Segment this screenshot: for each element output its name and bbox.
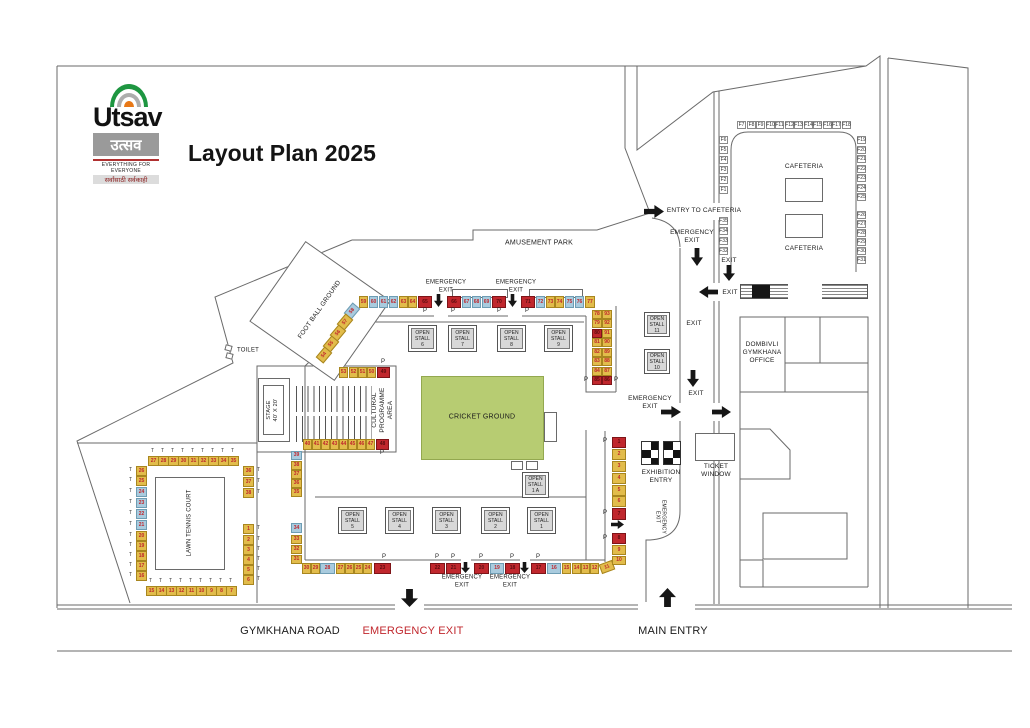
- stall-48: 48: [376, 439, 389, 450]
- food-stall-F7: F7: [737, 121, 746, 129]
- parking-mark: P: [435, 554, 439, 560]
- food-stall-F16: F16: [823, 121, 832, 129]
- map-label: AMUSEMENT PARK: [505, 240, 573, 249]
- stall-81: 81: [592, 338, 602, 347]
- map-label: CAFETERIA: [785, 245, 823, 253]
- right-arrow-icon: [661, 406, 681, 418]
- open-stall-label: OPEN STALL 5: [341, 510, 364, 531]
- stall-52: 52: [349, 367, 358, 378]
- w-box: [785, 178, 823, 202]
- w-box: [785, 214, 823, 238]
- down-arrow-icon: [687, 370, 699, 387]
- stall-9: 9: [612, 545, 626, 555]
- stall-77: 77: [585, 296, 595, 308]
- black-box: [752, 285, 770, 298]
- stall-33: 33: [291, 535, 302, 544]
- right-arrow-icon: [644, 205, 664, 218]
- right-arrow-icon: [712, 406, 731, 418]
- stall-1: 1: [612, 437, 626, 448]
- stall-74: 74: [555, 296, 564, 308]
- stall-8: 8: [612, 533, 626, 544]
- food-stall-F18: F18: [842, 121, 851, 129]
- parking-mark: P: [584, 377, 588, 383]
- stall-75: 75: [565, 296, 574, 308]
- open-stall: OPEN STALL 11: [644, 312, 670, 337]
- stall-22: 22: [430, 563, 445, 574]
- map-label: EXIT: [722, 289, 737, 297]
- food-stall-F14: F14: [804, 121, 813, 129]
- stall-14: 14: [572, 563, 581, 574]
- stall-31: 31: [291, 555, 302, 564]
- left-arrow-icon: [699, 286, 718, 298]
- tennis-t-mark: T: [257, 567, 260, 572]
- tennis-stall-37: 37: [243, 477, 254, 487]
- stall-45: 45: [348, 439, 357, 450]
- tennis-stall-18: 18: [136, 551, 147, 561]
- food-stall-F28: F28: [857, 229, 866, 237]
- food-stall-F1: F1: [719, 186, 728, 194]
- down-arrow-icon: [508, 294, 517, 307]
- stall-71: 71: [521, 296, 535, 308]
- stall-84: 84: [592, 367, 602, 376]
- w-box: [225, 352, 233, 360]
- open-stall: OPEN STALL 5: [338, 507, 367, 534]
- food-stall-F19: F19: [857, 136, 866, 144]
- tennis-t-mark: T: [129, 573, 132, 578]
- food-stall-F32: F32: [719, 247, 728, 255]
- tennis-stall-5: 5: [243, 565, 254, 575]
- open-stall-label: OPEN STALL 8: [500, 328, 523, 349]
- tennis-t-mark: T: [221, 449, 224, 454]
- food-stall-F13: F13: [794, 121, 803, 129]
- tennis-stall-6: 6: [243, 575, 254, 585]
- tennis-stall-26: 26: [136, 466, 147, 476]
- parking-mark: P: [451, 554, 455, 560]
- stall-63: 63: [399, 296, 408, 308]
- tennis-t-mark: T: [129, 500, 132, 505]
- tennis-stall-20: 20: [136, 531, 147, 541]
- tennis-t-mark: T: [161, 449, 164, 454]
- parking-mark: P: [536, 554, 540, 560]
- food-stall-F2: F2: [719, 176, 728, 184]
- food-stall-F22: F22: [857, 165, 866, 173]
- map-label: MAIN ENTRY: [638, 625, 708, 639]
- open-stall-label: OPEN STALL 3: [435, 510, 458, 531]
- stall-64: 64: [408, 296, 417, 308]
- open-stall: OPEN STALL 10: [644, 349, 670, 374]
- food-stall-F20: F20: [857, 146, 866, 154]
- map-label: EXIT: [688, 390, 703, 398]
- food-stall-F33: F33: [719, 237, 728, 245]
- food-stall-F29: F29: [857, 238, 866, 246]
- layout-plan-map: 5960616263646566676869707172737475767758…: [0, 0, 1030, 728]
- stall-23: 23: [374, 563, 391, 574]
- tennis-stall-3: 3: [243, 545, 254, 555]
- stall-13: 13: [581, 563, 590, 574]
- open-stall-label: OPEN STALL 6: [411, 328, 434, 349]
- parking-mark: P: [479, 554, 483, 560]
- parking-mark: P: [603, 535, 607, 541]
- stall-17: 17: [531, 563, 546, 574]
- stall-32: 32: [291, 545, 302, 554]
- tennis-t-mark: T: [229, 579, 232, 584]
- parking-mark: P: [603, 510, 607, 516]
- stall-42: 42: [321, 439, 330, 450]
- w-box: [224, 344, 232, 352]
- food-stall-F34: F34: [719, 227, 728, 235]
- food-stall-F17: F17: [832, 121, 841, 129]
- food-stall-F24: F24: [857, 184, 866, 192]
- tennis-t-mark: T: [231, 449, 234, 454]
- stall-89: 89: [602, 348, 612, 357]
- parking-mark: P: [380, 450, 384, 456]
- tennis-t-mark: T: [169, 579, 172, 584]
- tennis-stall-7: 7: [226, 586, 237, 596]
- stall-46: 46: [357, 439, 366, 450]
- tennis-t-mark: T: [149, 579, 152, 584]
- down-arrow-icon: [461, 562, 470, 573]
- tennis-stall-2: 2: [243, 535, 254, 545]
- stall-4: 4: [612, 473, 626, 484]
- map-label: DOMBIVLI GYMKHANA OFFICE: [743, 341, 782, 365]
- tennis-t-mark: T: [129, 563, 132, 568]
- map-label: EXIT: [686, 320, 701, 328]
- parking-mark: P: [525, 308, 529, 314]
- w-box: [526, 461, 538, 470]
- stall-10: 10: [612, 556, 626, 565]
- stall-68: 68: [472, 296, 481, 308]
- tennis-t-mark: T: [209, 579, 212, 584]
- down-arrow-icon: [401, 589, 418, 607]
- stall-49: 49: [377, 367, 390, 378]
- tennis-t-mark: T: [257, 537, 260, 542]
- map-label: CRICKET GROUND: [449, 414, 515, 423]
- stall-92: 92: [602, 319, 612, 328]
- food-stall-F9: F9: [756, 121, 765, 129]
- food-stall-F11: F11: [775, 121, 784, 129]
- stall-39: 39: [291, 451, 302, 460]
- stall-34: 34: [291, 523, 302, 533]
- tennis-t-mark: T: [129, 511, 132, 516]
- tennis-t-mark: T: [129, 489, 132, 494]
- tennis-t-mark: T: [159, 579, 162, 584]
- stall-29: 29: [311, 563, 320, 574]
- food-stall-F25: F25: [857, 193, 866, 201]
- parking-mark: P: [423, 308, 427, 314]
- stall-15: 15: [562, 563, 571, 574]
- map-label: EMERGENCY EXIT: [362, 625, 463, 639]
- stall-88: 88: [602, 357, 612, 366]
- stall-18: 18: [505, 563, 520, 574]
- tennis-stall-25: 25: [136, 476, 147, 486]
- stall-61: 61: [379, 296, 388, 308]
- parking-mark: P: [603, 438, 607, 444]
- food-stall-F35: F35: [719, 217, 728, 225]
- open-stall-label: OPEN STALL 1 A: [525, 475, 546, 495]
- parking-mark: P: [497, 308, 501, 314]
- stall-59: 59: [359, 296, 368, 308]
- stall-93: 93: [602, 310, 612, 319]
- map-label: EMERGENCY EXIT: [654, 500, 667, 534]
- stall-79: 79: [592, 319, 602, 328]
- tennis-t-mark: T: [189, 579, 192, 584]
- stall-69: 69: [482, 296, 491, 308]
- stall-25: 25: [354, 563, 363, 574]
- tennis-t-mark: T: [151, 449, 154, 454]
- tennis-t-mark: T: [199, 579, 202, 584]
- up-arrow-icon: [659, 588, 676, 607]
- stall-5: 5: [612, 485, 626, 496]
- tennis-stall-21: 21: [136, 520, 147, 530]
- open-stall-label: OPEN STALL 2: [484, 510, 507, 531]
- open-stall: OPEN STALL 7: [448, 325, 477, 352]
- tennis-stall-16: 16: [136, 571, 147, 581]
- tennis-t-mark: T: [191, 449, 194, 454]
- stall-51: 51: [358, 367, 367, 378]
- tennis-t-mark: T: [129, 468, 132, 473]
- tennis-t-mark: T: [129, 533, 132, 538]
- down-arrow-icon: [520, 562, 529, 573]
- stall-73: 73: [546, 296, 555, 308]
- stall-16: 16: [547, 563, 561, 574]
- stall-80: 80: [592, 329, 602, 338]
- tennis-t-mark: T: [129, 522, 132, 527]
- stall-38: 38: [291, 461, 302, 470]
- map-label: STAGE 40' X 20': [266, 399, 280, 422]
- map-label: EMERGENCY EXIT: [426, 280, 466, 295]
- stall-47: 47: [366, 439, 375, 450]
- stall-76: 76: [575, 296, 584, 308]
- stall-35: 35: [291, 488, 302, 497]
- tennis-t-mark: T: [257, 468, 260, 473]
- stall-44: 44: [339, 439, 348, 450]
- stall-78: 78: [592, 310, 602, 319]
- tennis-stall-4: 4: [243, 555, 254, 565]
- stall-62: 62: [389, 296, 398, 308]
- tennis-stall-35: 35: [228, 456, 239, 466]
- map-label: EXHIBITION ENTRY: [642, 469, 681, 485]
- parking-mark: P: [381, 359, 385, 365]
- down-arrow-icon: [723, 265, 735, 281]
- stall-41: 41: [312, 439, 321, 450]
- stall-26: 26: [345, 563, 354, 574]
- stall-66: 66: [447, 296, 461, 308]
- tennis-t-mark: T: [257, 490, 260, 495]
- parking-mark: P: [451, 308, 455, 314]
- food-stall-F5: F5: [719, 146, 728, 154]
- map-label: LAWN TENNIS COURT: [186, 490, 194, 557]
- stall-43: 43: [330, 439, 339, 450]
- food-stall-F12: F12: [785, 121, 794, 129]
- stall-82: 82: [592, 348, 602, 357]
- tennis-t-mark: T: [257, 526, 260, 531]
- stall-36: 36: [291, 479, 302, 488]
- tennis-t-mark: T: [179, 579, 182, 584]
- stall-7: 7: [612, 508, 626, 520]
- stall-83: 83: [592, 357, 602, 366]
- food-stall-F8: F8: [747, 121, 756, 129]
- down-arrow-icon: [691, 248, 703, 266]
- parking-mark: P: [510, 554, 514, 560]
- map-label: CAFETERIA: [785, 163, 823, 171]
- tennis-t-mark: T: [129, 553, 132, 558]
- stall-70: 70: [492, 296, 506, 308]
- map-label: EMERGENCY EXIT: [496, 280, 536, 295]
- map-label: GYMKHANA ROAD: [240, 625, 340, 639]
- open-stall-label: OPEN STALL 11: [647, 315, 667, 334]
- tennis-t-mark: T: [219, 579, 222, 584]
- stall-60: 60: [369, 296, 378, 308]
- food-stall-F26: F26: [857, 211, 866, 219]
- open-stall: OPEN STALL 3: [432, 507, 461, 534]
- map-label: EMERGENCY EXIT: [442, 575, 482, 590]
- tennis-t-mark: T: [257, 547, 260, 552]
- open-stall: OPEN STALL 8: [497, 325, 526, 352]
- tennis-t-mark: T: [129, 478, 132, 483]
- stall-50: 50: [367, 367, 376, 378]
- stall-91: 91: [602, 329, 612, 338]
- food-stall-F15: F15: [813, 121, 822, 129]
- w-box: [544, 412, 557, 442]
- check2-box: [663, 441, 681, 465]
- map-label: EXIT: [721, 257, 736, 265]
- open-stall: OPEN STALL 1: [527, 507, 556, 534]
- map-label: EMERGENCY EXIT: [490, 575, 530, 590]
- check-box: [641, 441, 659, 465]
- stall-6: 6: [612, 496, 626, 507]
- map-label: CULTURAL PROGRAMME AREA: [371, 387, 395, 432]
- tennis-t-mark: T: [257, 479, 260, 484]
- open-stall: OPEN STALL 4: [385, 507, 414, 534]
- open-stall-label: OPEN STALL 4: [388, 510, 411, 531]
- open-stall-label: OPEN STALL 7: [451, 328, 474, 349]
- stall-87: 87: [602, 367, 612, 376]
- map-label: TICKET WINDOW: [701, 463, 731, 479]
- map-label: ENTRY TO CAFETERIA: [667, 207, 741, 215]
- open-stall-label: OPEN STALL 10: [647, 352, 667, 371]
- stall-65: 65: [418, 296, 432, 308]
- w-box: [511, 461, 523, 470]
- food-stall-F6: F6: [719, 136, 728, 144]
- food-stall-F27: F27: [857, 220, 866, 228]
- map-label: TOILET: [237, 347, 259, 355]
- stall-37: 37: [291, 470, 302, 479]
- tennis-t-mark: T: [129, 543, 132, 548]
- stall-53: 53: [339, 367, 348, 378]
- tennis-stall-19: 19: [136, 541, 147, 551]
- stall-3: 3: [612, 461, 626, 472]
- down-arrow-icon: [434, 294, 443, 307]
- stall-19: 19: [490, 563, 504, 574]
- stall-85: 85: [592, 376, 602, 385]
- layout-plan-page: Utsav उत्सव EVERYTHING FOR EVERYONE सर्व…: [0, 0, 1030, 728]
- tennis-t-mark: T: [201, 449, 204, 454]
- stall-40: 40: [303, 439, 312, 450]
- tennis-stall-17: 17: [136, 561, 147, 571]
- tennis-stall-23: 23: [136, 498, 147, 508]
- stall-28: 28: [320, 563, 335, 574]
- open-stall: OPEN STALL 2: [481, 507, 510, 534]
- tennis-t-mark: T: [211, 449, 214, 454]
- stall-20: 20: [474, 563, 489, 574]
- tennis-stall-1: 1: [243, 524, 254, 534]
- open-stall-label: OPEN STALL 1: [530, 510, 553, 531]
- w-box: [695, 433, 735, 461]
- tennis-t-mark: T: [257, 577, 260, 582]
- map-label: EMERGENCY EXIT: [670, 229, 714, 245]
- open-stall: OPEN STALL 6: [408, 325, 437, 352]
- stall-67: 67: [462, 296, 471, 308]
- right-arrow-icon: [611, 520, 624, 529]
- food-stall-F4: F4: [719, 156, 728, 164]
- tennis-stall-36: 36: [243, 466, 254, 476]
- food-stall-F10: F10: [766, 121, 775, 129]
- tennis-stall-38: 38: [243, 488, 254, 498]
- food-stall-F21: F21: [857, 155, 866, 163]
- parking-mark: P: [382, 554, 386, 560]
- food-stall-F31: F31: [857, 256, 866, 264]
- stall-2: 2: [612, 449, 626, 460]
- stall-86: 86: [602, 376, 612, 385]
- parking-mark: P: [614, 377, 618, 383]
- stall-12: 12: [590, 563, 599, 574]
- stall-27: 27: [336, 563, 345, 574]
- open-stall-label: OPEN STALL 9: [547, 328, 570, 349]
- tennis-stall-22: 22: [136, 509, 147, 519]
- tennis-t-mark: T: [181, 449, 184, 454]
- wp-box: [788, 284, 822, 299]
- tennis-t-mark: T: [257, 557, 260, 562]
- food-stall-F3: F3: [719, 166, 728, 174]
- tennis-stall-24: 24: [136, 487, 147, 497]
- open-stall: OPEN STALL 1 A: [522, 472, 549, 498]
- stall-90: 90: [602, 338, 612, 347]
- stall-72: 72: [536, 296, 545, 308]
- stall-21: 21: [446, 563, 461, 574]
- seat-box: [296, 386, 372, 412]
- open-stall: OPEN STALL 9: [544, 325, 573, 352]
- food-stall-F23: F23: [857, 174, 866, 182]
- food-stall-F30: F30: [857, 247, 866, 255]
- tennis-t-mark: T: [171, 449, 174, 454]
- stall-24: 24: [363, 563, 372, 574]
- stall-30: 30: [302, 563, 311, 574]
